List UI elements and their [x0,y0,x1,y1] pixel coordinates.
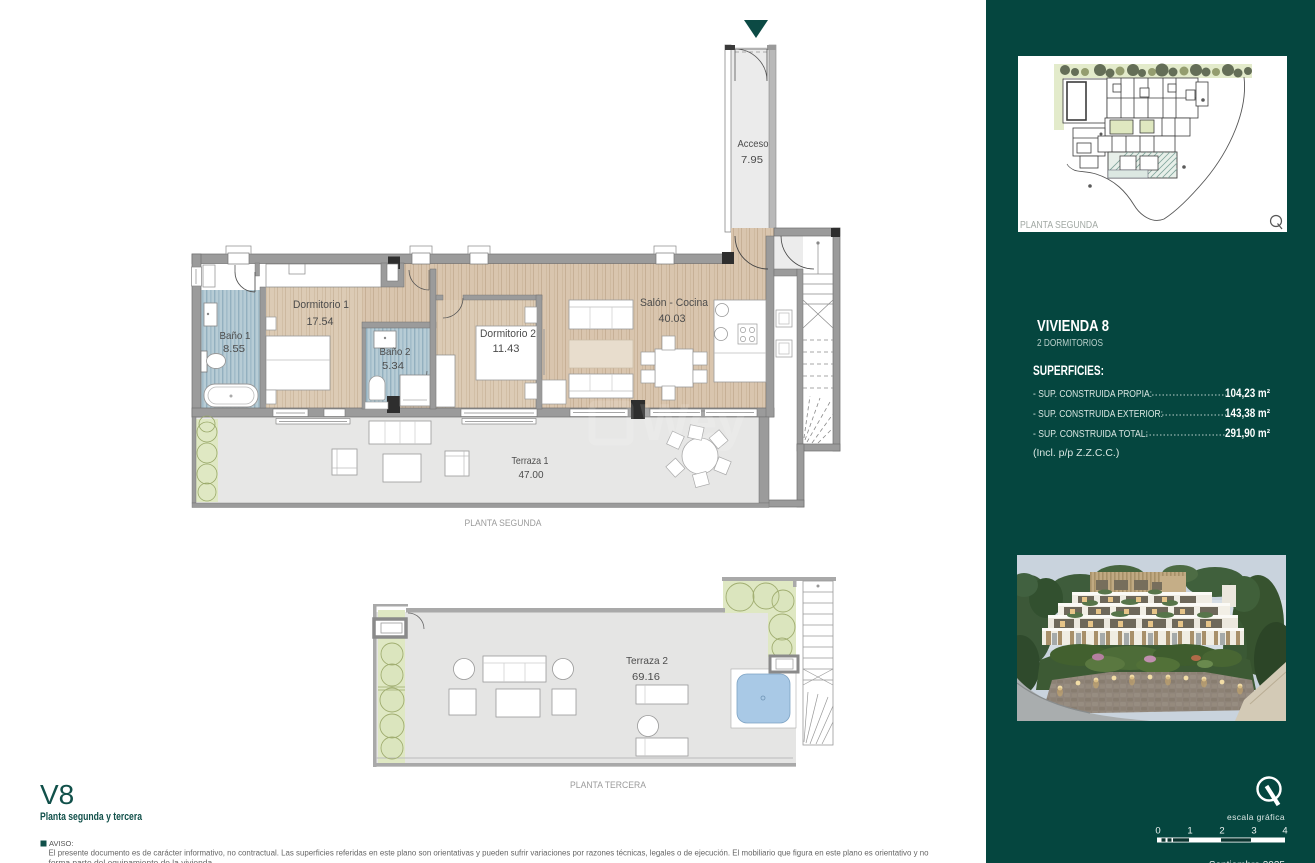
svg-text:PLANTA SEGUNDA: PLANTA SEGUNDA [465,518,543,528]
svg-text:143,38 m²: 143,38 m² [1225,408,1270,420]
svg-text:Dormitorio 1: Dormitorio 1 [293,299,349,311]
svg-text:El presente documento es de ca: El presente documento es de carácter inf… [49,849,930,858]
svg-text:- SUP. CONSTRUIDA EXTERIOR:: - SUP. CONSTRUIDA EXTERIOR: [1033,408,1163,420]
svg-text:291,90 m²: 291,90 m² [1225,428,1270,440]
svg-text:forma parte del equipamiento d: forma parte del equipamiento de la vivie… [49,859,215,863]
svg-text:escala gráfica: escala gráfica [1227,812,1285,822]
svg-text:11.43: 11.43 [493,343,520,355]
svg-text:2: 2 [1219,826,1224,837]
svg-text:4: 4 [1282,826,1287,837]
svg-text:PLANTA SEGUNDA: PLANTA SEGUNDA [1020,219,1098,231]
svg-text:69.16: 69.16 [632,671,660,683]
svg-text:Terraza 2: Terraza 2 [626,655,668,667]
svg-text:2 DORMITORIOS: 2 DORMITORIOS [1037,337,1103,349]
svg-text:8.55: 8.55 [223,343,245,355]
svg-text:AVISO:: AVISO: [49,839,73,848]
svg-text:SUPERFICIES:: SUPERFICIES: [1033,363,1104,378]
svg-text:47.00: 47.00 [519,469,544,481]
svg-text:- SUP. CONSTRUIDA PROPIA:: - SUP. CONSTRUIDA PROPIA: [1033,388,1152,400]
svg-text:1: 1 [1187,826,1192,837]
svg-text:V8: V8 [40,779,74,810]
svg-text:40.03: 40.03 [659,313,686,325]
svg-text:Acceso: Acceso [738,139,769,150]
svg-text:Baño 2: Baño 2 [380,346,411,358]
svg-text:Baño 1: Baño 1 [220,330,251,342]
svg-text:17.54: 17.54 [307,316,334,328]
svg-text:Terraza 1: Terraza 1 [512,455,549,467]
svg-text:3: 3 [1251,826,1256,837]
svg-text:7.95: 7.95 [741,155,763,166]
svg-text:Wey: Wey [640,394,746,452]
svg-text:VIVIENDA 8: VIVIENDA 8 [1037,318,1109,335]
svg-text:- SUP. CONSTRUIDA TOTAL:: - SUP. CONSTRUIDA TOTAL: [1033,428,1148,440]
svg-text:5.34: 5.34 [382,360,404,372]
svg-text:0: 0 [1155,826,1160,837]
svg-text:Planta segunda y tercera: Planta segunda y tercera [40,811,143,823]
svg-text:Dormitorio 2: Dormitorio 2 [480,328,536,340]
svg-text:PLANTA TERCERA: PLANTA TERCERA [570,780,647,790]
svg-text:(Incl. p/p Z.Z.C.C.): (Incl. p/p Z.Z.C.C.) [1033,447,1119,459]
svg-text:104,23 m²: 104,23 m² [1225,388,1270,400]
svg-text:Salón - Cocina: Salón - Cocina [640,297,709,309]
